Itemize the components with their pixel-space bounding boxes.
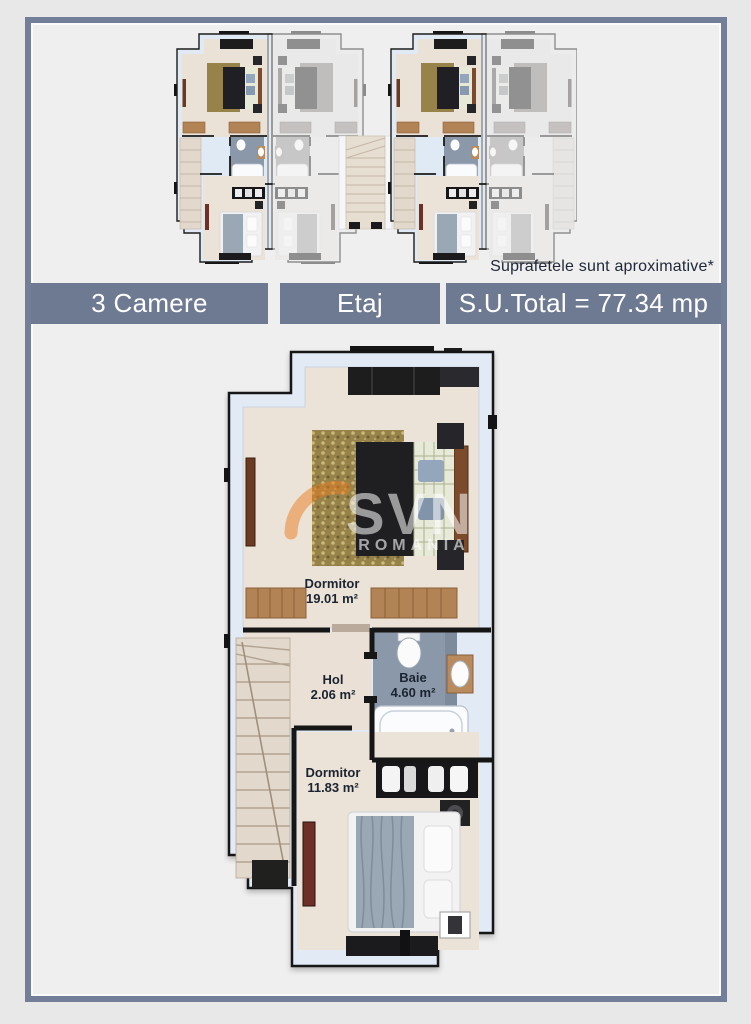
room-label-hol: Hol bbox=[323, 672, 344, 687]
floor-level-bar: Etaj bbox=[280, 283, 440, 324]
main-floorplan: SVN ROMANIA Dormitor 19.01 m² Hol 2.06 m… bbox=[224, 346, 504, 978]
room-label-dormitor-1: Dormitor bbox=[305, 576, 360, 591]
room-area-dormitor-1: 19.01 m² bbox=[306, 591, 359, 606]
overview-floorplan-svg bbox=[167, 30, 577, 270]
approx-note: Suprafetele sunt aproximative* bbox=[430, 258, 714, 278]
rooms-count-bar: 3 Camere bbox=[31, 283, 268, 324]
watermark-line2: ROMANIA bbox=[358, 537, 469, 554]
room-area-dormitor-2: 11.83 m² bbox=[307, 780, 359, 795]
overview-building-2 bbox=[388, 31, 577, 264]
overview-floorplan bbox=[167, 30, 577, 270]
brochure-page: Suprafetele sunt aproximative* 3 Camere … bbox=[0, 0, 751, 1024]
overview-building-1 bbox=[174, 31, 366, 264]
main-floorplan-svg: SVN ROMANIA Dormitor 19.01 m² Hol 2.06 m… bbox=[224, 346, 504, 978]
overview-stairwell bbox=[339, 136, 392, 229]
room-area-hol: 2.06 m² bbox=[311, 687, 356, 702]
room-label-baie: Baie bbox=[399, 670, 426, 685]
total-area-label: S.U.Total = 77.34 mp bbox=[459, 288, 709, 318]
room-area-baie: 4.60 m² bbox=[391, 685, 436, 700]
room-label-dormitor-2: Dormitor bbox=[306, 765, 361, 780]
floor-level-label: Etaj bbox=[337, 288, 383, 318]
total-area-bar: S.U.Total = 77.34 mp bbox=[446, 283, 721, 324]
rooms-count-label: 3 Camere bbox=[91, 288, 208, 318]
